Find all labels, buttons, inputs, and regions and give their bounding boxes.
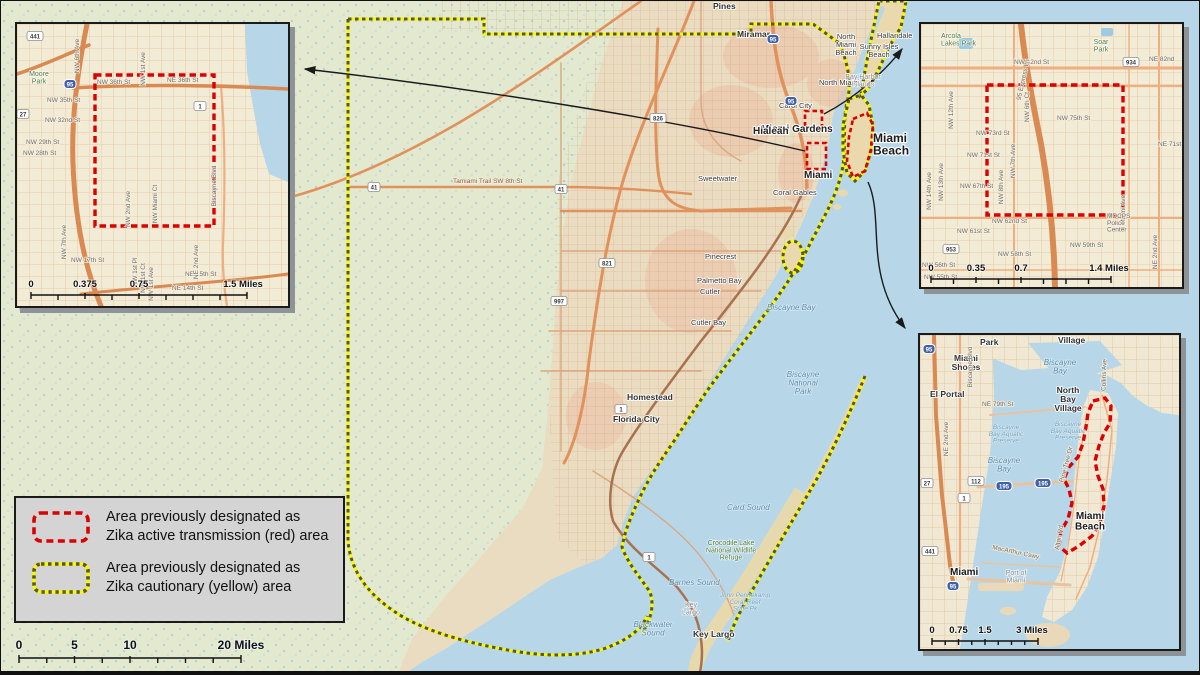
lake [1101, 28, 1113, 36]
map-label: NW 32nd St [45, 117, 80, 124]
map-label: Pinecrest [705, 252, 737, 261]
inset-miami-beach-map: ParkVillageMiamiShoresEl PortalNorthBayV… [920, 335, 1179, 649]
svg-text:195: 195 [999, 484, 1010, 490]
map-label: NW 6th Ave [74, 39, 81, 74]
map-label: NW 6th Ct [1024, 92, 1031, 122]
map-label: Biscayne Blvd [211, 165, 218, 206]
map-label: NW 8th Ave [998, 170, 1005, 205]
map-label: Miramar [737, 29, 771, 39]
map-label: NW 71st St [967, 152, 1000, 159]
map-label: NW 67th St [960, 183, 993, 190]
map-label: Tamiami Trail SW 8th St [453, 178, 523, 185]
map-label: NW 35th St [47, 97, 80, 104]
route-shield: 41 [555, 185, 567, 194]
map-label: NorthMiamiBeach [835, 32, 856, 57]
map-label: NE 15th St [185, 271, 217, 278]
map-label: MiamiBeach [1075, 511, 1105, 533]
map-label: Collins Ave [1100, 358, 1108, 391]
svg-text:95: 95 [770, 37, 777, 43]
map-label: Homestead [627, 392, 673, 402]
map-label: NW 61st St [957, 228, 990, 235]
legend-yellow-line2: Zika cautionary (yellow) area [106, 578, 300, 597]
map-label: Key Largo [693, 629, 735, 639]
route-shield: 27 [17, 110, 29, 119]
inset-little-river-frame: NW 82nd StNE 82ndNW 75th StNW 73rd StNW … [919, 22, 1184, 289]
svg-text:997: 997 [554, 299, 565, 305]
interstate-shield: 95 [767, 35, 779, 44]
map-label: NW 73rd St [976, 130, 1010, 137]
legend: Area previously designated as Zika activ… [14, 496, 345, 623]
map-label: Miami [804, 170, 833, 181]
map-label: NW 13th Ave [938, 163, 945, 201]
scale-label: 3 Miles [1016, 625, 1048, 636]
map-label: NW 7th Ave [61, 225, 68, 260]
legend-yellow-line1: Area previously designated as [106, 559, 300, 578]
map-label: El Portal [930, 389, 964, 399]
map-label: NE 79th St [982, 401, 1014, 408]
scale-label: 5 [71, 638, 78, 652]
map-label: Cutler Bay [691, 318, 726, 327]
route-shield: 1 [194, 102, 206, 111]
map-label: Hialeah [753, 126, 789, 137]
svg-text:95: 95 [788, 99, 795, 105]
svg-text:95: 95 [926, 347, 933, 353]
map-label: Park [980, 337, 999, 347]
route-shield: 441 [922, 547, 938, 556]
zika-designation-map: PinesMiramarHallandaleCarol CityMiami Ga… [0, 0, 1200, 675]
svg-text:41: 41 [558, 187, 565, 193]
scale-label: 0 [16, 638, 23, 652]
svg-text:27: 27 [20, 112, 27, 118]
map-label: BiscayneBay AquaticPreserve [989, 424, 1024, 445]
route-shield: 441 [27, 32, 43, 41]
scale-label: 0 [928, 263, 933, 274]
scale-label: 0.75 [949, 625, 968, 636]
map-label: NE 2nd Ave [1152, 235, 1159, 270]
svg-text:441: 441 [925, 549, 936, 555]
map-label: NW 62nd St [992, 218, 1027, 225]
route-shield: 41 [368, 183, 380, 192]
map-label: Cutler [700, 287, 721, 296]
map-label: NW 58th St [998, 251, 1031, 258]
scale-label: 20 Miles [218, 638, 265, 652]
scale-label: 1.4 Miles [1089, 263, 1129, 274]
map-label: NE 71st [1158, 141, 1181, 148]
scale-label: 0.7 [1014, 263, 1027, 274]
island [1000, 607, 1016, 615]
svg-text:95: 95 [67, 82, 74, 88]
svg-text:112: 112 [971, 479, 981, 485]
scale-label: 0.375 [73, 279, 97, 290]
red-dashed-swatch [30, 509, 92, 545]
map-label: NW 12th Ave [948, 91, 955, 129]
route-shield: 821 [599, 259, 615, 268]
map-label: Port ofMiami [1006, 570, 1027, 584]
scale-label: 0.35 [967, 263, 986, 274]
map-label: Biscayne Bay [767, 303, 816, 312]
map-label: SoarPark [1094, 39, 1109, 53]
map-label: NW 36th St [97, 79, 130, 86]
inset-little-river-map: NW 82nd StNE 82ndNW 75th StNW 73rd StNW … [921, 24, 1182, 287]
map-label: NW 2nd Ave [125, 191, 132, 227]
map-label: NW 28th St [23, 150, 56, 157]
svg-text:934: 934 [1126, 60, 1137, 66]
map-label: NW 59th St [1070, 242, 1103, 249]
map-label: Village [1058, 335, 1086, 345]
route-shield: 953 [943, 245, 959, 254]
route-shield: 27 [921, 479, 933, 488]
legend-red-line2: Zika active transmission (red) area [106, 527, 328, 546]
map-label: NW 55th St [924, 274, 957, 281]
route-shield: 112 [968, 477, 984, 486]
route-shield: 934 [1123, 58, 1139, 67]
map-label: Coral Gables [773, 188, 817, 197]
map-label: NW 75th St [1057, 115, 1090, 122]
interstate-shield: 95 [923, 345, 935, 354]
map-label: NE 2nd Ave [193, 245, 200, 280]
scale-label: 10 [123, 638, 137, 652]
route-shield: 1 [643, 553, 655, 562]
map-label: Miami [950, 567, 979, 578]
route-shield: 826 [650, 114, 666, 123]
map-label: NW 7th Ave [1010, 144, 1017, 179]
yellow-dotted-swatch [30, 560, 92, 596]
map-label: NW 1st Ave [148, 267, 155, 301]
legend-item-red-zone: Area previously designated as Zika activ… [30, 508, 335, 546]
map-label: NW 1st Ave [140, 52, 147, 86]
inset-wynwood-frame: NW 36th StNE 36th StNW 35th StNW 32nd St… [15, 22, 290, 308]
svg-text:195: 195 [1038, 481, 1049, 487]
svg-text:441: 441 [30, 34, 41, 40]
svg-text:826: 826 [653, 116, 664, 122]
map-label: Barnes Sound [669, 578, 720, 587]
map-label: BiscayneBay AquaticPreserve [1051, 421, 1086, 442]
map-label: NW 29th St [26, 139, 59, 146]
interstate-shield: 95 [64, 80, 76, 89]
svg-text:953: 953 [946, 247, 957, 253]
scale-label: 1.5 [978, 625, 992, 636]
interstate-shield: 195 [996, 482, 1012, 491]
map-label: NE 2nd Ave [943, 422, 950, 457]
interstate-shield: 195 [1035, 479, 1051, 488]
map-label: NE 36th St [167, 77, 199, 84]
scale-label: 0 [28, 279, 33, 290]
map-label: Card Sound [727, 503, 770, 512]
inset-wynwood-map: NW 36th StNE 36th StNW 35th StNW 32nd St… [17, 24, 288, 306]
svg-text:821: 821 [602, 261, 613, 267]
interstate-shield: 95 [785, 97, 797, 106]
inset-miami-beach-frame: ParkVillageMiamiShoresEl PortalNorthBayV… [918, 333, 1181, 651]
map-label: Pines [713, 1, 736, 11]
map-label: Palmetto Bay [697, 276, 742, 285]
svg-text:27: 27 [924, 481, 931, 487]
route-shield: 1 [958, 494, 970, 503]
scale-label: 1.5 Miles [223, 279, 263, 290]
map-label: Sweetwater [698, 174, 738, 183]
route-shield: 1 [615, 405, 627, 414]
map-label: NW 82nd St [1014, 59, 1049, 66]
map-label: NE 14th St [172, 285, 204, 292]
map-label: Hallandale [877, 31, 912, 40]
map-label: Biscayne Blvd [967, 346, 974, 387]
broward-grid [441, 1, 617, 31]
svg-text:41: 41 [371, 185, 378, 191]
scale-label: 0.75 [130, 279, 149, 290]
map-label: NE 82nd [1149, 56, 1175, 63]
legend-item-yellow-zone: Area previously designated as Zika cauti… [30, 559, 335, 597]
interstate-shield: 95 [947, 582, 959, 591]
map-label: NW Miami Ct [152, 185, 159, 223]
map-label: NW 17th St [71, 257, 104, 264]
map-label: MoorePark [29, 71, 49, 85]
map-label: Florida City [613, 414, 660, 424]
map-label: NW 14th Ave [926, 172, 933, 210]
svg-text:95: 95 [950, 584, 957, 590]
legend-red-line1: Area previously designated as [106, 508, 328, 527]
route-shield: 997 [551, 297, 567, 306]
scale-label: 0 [929, 625, 934, 636]
map-label: NW 56th St [922, 262, 955, 269]
map-label: MiamiBeach [873, 131, 909, 158]
